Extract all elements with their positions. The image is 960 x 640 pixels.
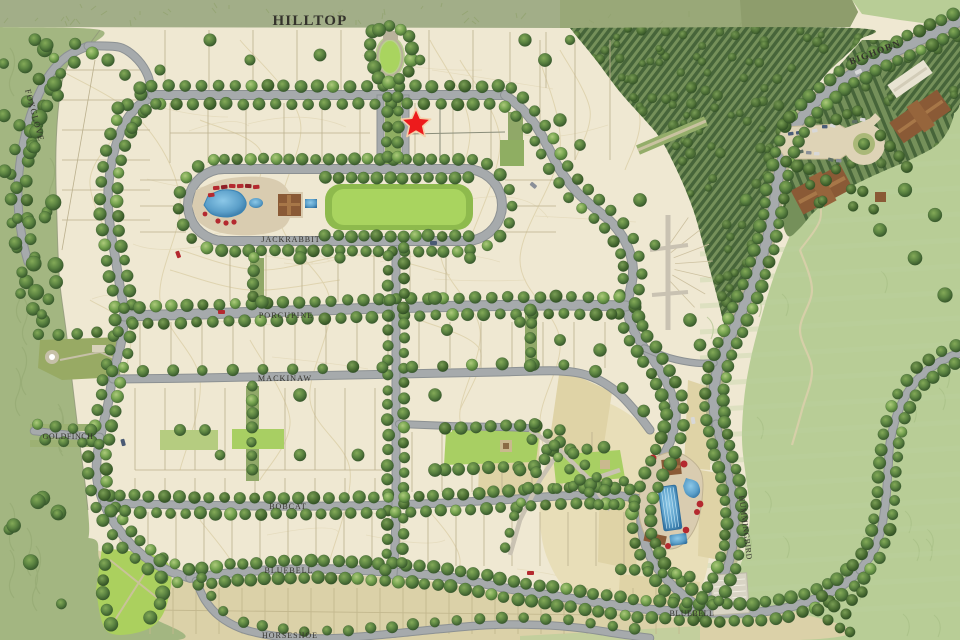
svg-text:MACKINAW: MACKINAW — [258, 374, 312, 383]
svg-text:GOLDFINCH: GOLDFINCH — [43, 432, 94, 441]
svg-text:HILLTOP: HILLTOP — [272, 13, 347, 29]
svg-text:BLUEBELL: BLUEBELL — [670, 609, 715, 618]
svg-text:BOBCAT: BOBCAT — [269, 502, 307, 511]
svg-text:HORSESHOE: HORSESHOE — [262, 631, 318, 640]
svg-text:PORCUPINE: PORCUPINE — [259, 311, 314, 320]
svg-text:JACKRABBIT: JACKRABBIT — [261, 235, 320, 244]
svg-text:BLUEBELL: BLUEBELL — [265, 566, 314, 575]
